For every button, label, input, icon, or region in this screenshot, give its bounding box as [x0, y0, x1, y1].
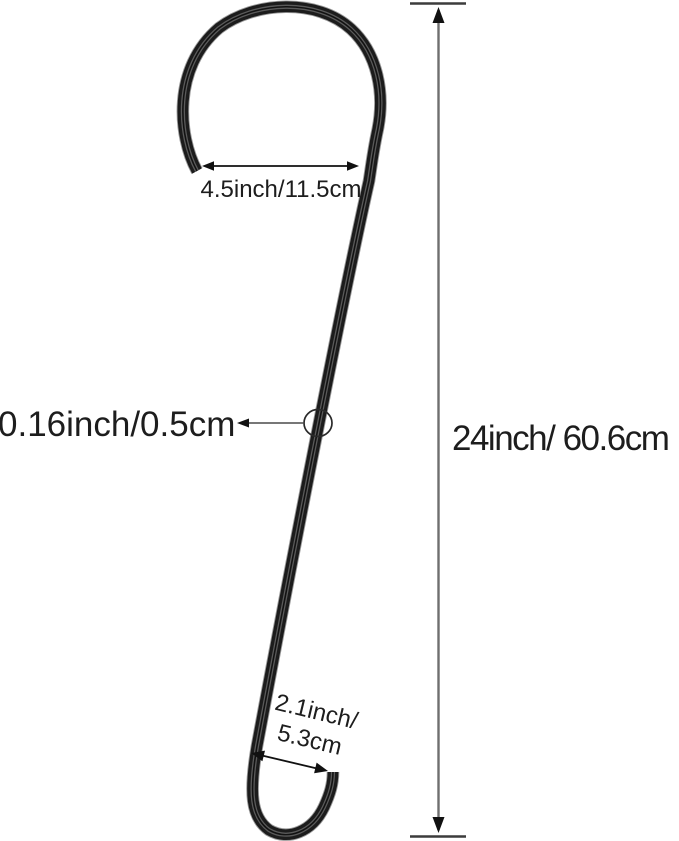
hook-opening-dimension-arrow — [202, 161, 359, 170]
product-diagram: 4.5inch/11.5cm 0.16inch/0.5cm 24inch/ 60… — [0, 0, 679, 841]
wire-thickness-label: 0.16inch/0.5cm — [0, 407, 235, 442]
total-length-arrowhead-top — [433, 7, 445, 23]
total-length-label: 24inch/ 60.6cm — [452, 421, 668, 456]
hook-opening-arrowhead-left — [202, 161, 214, 170]
bottom-hook-arrow-line — [262, 756, 317, 769]
hook-opening-label: 4.5inch/11.5cm — [201, 177, 362, 203]
wire-thickness-arrowhead — [237, 419, 249, 428]
total-length-arrowhead-bottom — [433, 817, 445, 833]
bottom-hook-arrowhead-right — [314, 763, 328, 774]
hook-opening-arrowhead-right — [347, 161, 359, 170]
